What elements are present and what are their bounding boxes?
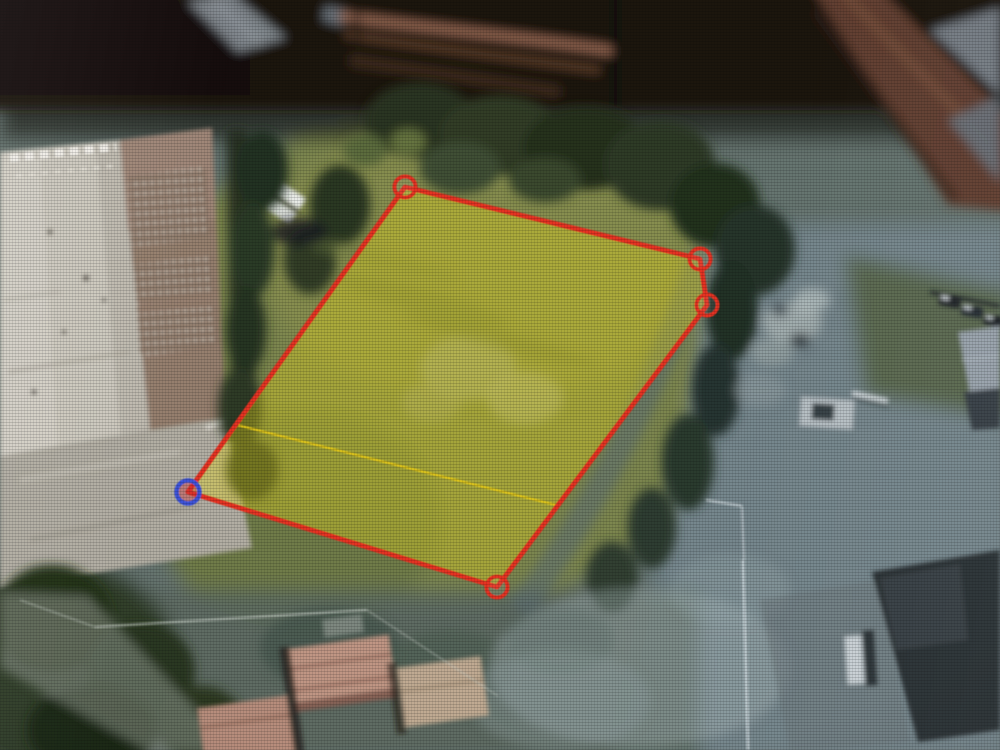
white-shed xyxy=(799,396,855,430)
parcel-vertex-marker-3[interactable] xyxy=(487,577,508,598)
parcel-vertex-marker-0[interactable] xyxy=(395,177,416,198)
parcel-vertex-marker-2[interactable] xyxy=(697,295,718,316)
screen-photo xyxy=(0,0,1000,750)
satellite-imagery xyxy=(0,0,1000,750)
parcel-vertex-marker-selected[interactable] xyxy=(177,481,200,504)
parcel-vertex-marker-1[interactable] xyxy=(690,249,711,270)
pole xyxy=(612,0,619,108)
map-view[interactable] xyxy=(0,0,1000,750)
